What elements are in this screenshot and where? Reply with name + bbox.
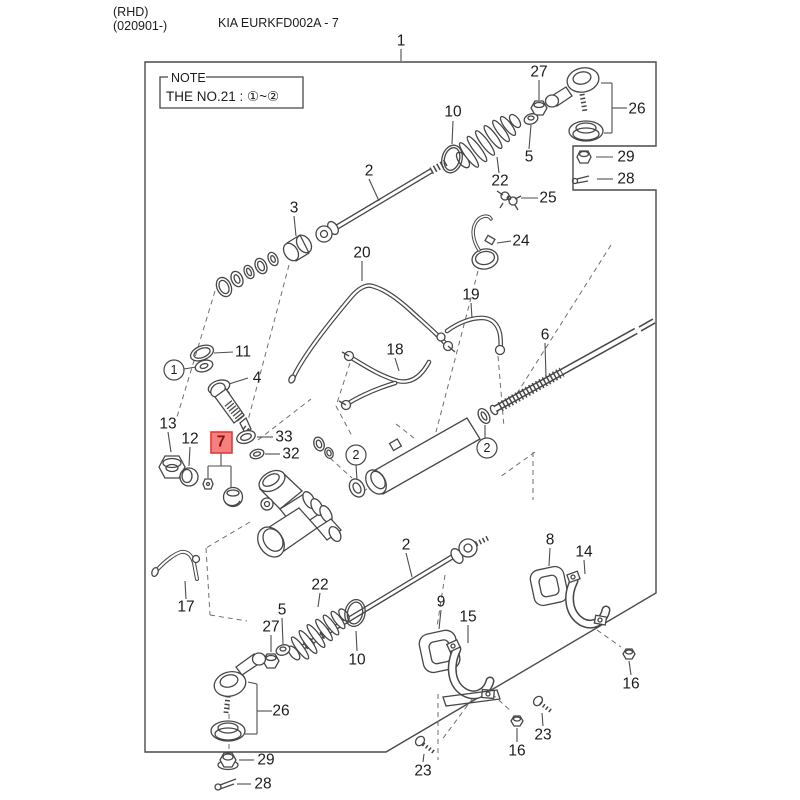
callout-22[interactable]: 22 — [491, 173, 508, 190]
part-nut-29-bottom — [218, 753, 238, 770]
callout-10[interactable]: 10 — [444, 104, 462, 121]
callout-18[interactable]: 18 — [386, 342, 403, 359]
callout-33[interactable]: 33 — [275, 429, 292, 446]
part-clamp-24 — [470, 216, 499, 271]
callout-23[interactable]: 23 — [414, 763, 431, 780]
callout-6[interactable]: 6 — [541, 327, 550, 344]
callout-29[interactable]: 29 — [617, 149, 634, 166]
callout-1[interactable]: 1 — [397, 33, 406, 50]
callout-20[interactable]: 20 — [353, 245, 371, 262]
part-bolt-23-right — [532, 695, 552, 712]
part-nut-29-top — [577, 151, 591, 163]
part-cotter-pin-28-top — [573, 176, 590, 184]
parts-diagram: (RHD) (020901-) KIA EURKFD002A - 7 NOTE … — [0, 0, 800, 800]
part-support-yoke-7 — [224, 488, 243, 507]
callout-2[interactable]: 2 — [402, 537, 411, 554]
callout-29[interactable]: 29 — [257, 752, 274, 769]
callout-9[interactable]: 9 — [437, 594, 446, 611]
callout-5[interactable]: 5 — [525, 149, 534, 166]
callout-19[interactable]: 19 — [462, 287, 479, 304]
part-nut-16-bottom — [511, 716, 523, 726]
part-clamp-25 — [497, 191, 521, 210]
part-yoke-nut-7 — [203, 479, 213, 489]
part-seal-33 — [235, 428, 257, 445]
parts-catalog-page: (RHD) (020901-) KIA EURKFD002A - 7 NOTE … — [0, 0, 800, 800]
part-pinion-valve-assy — [208, 380, 251, 433]
callout-28[interactable]: 28 — [254, 776, 271, 793]
callout-12[interactable]: 12 — [181, 431, 198, 448]
callout-11[interactable]: 11 — [235, 344, 251, 361]
callout-2[interactable]: 2 — [484, 441, 491, 455]
callout-27[interactable]: 27 — [530, 64, 547, 81]
drive-type-label: (RHD) — [113, 5, 148, 19]
callout-24[interactable]: 24 — [512, 233, 530, 250]
part-bellows-boot-22-top — [454, 113, 523, 170]
callout-16[interactable]: 16 — [508, 743, 525, 760]
callout-10[interactable]: 10 — [348, 652, 366, 669]
part-mount-bracket-14 — [567, 571, 607, 625]
part-tube-seal-2b — [476, 407, 493, 426]
note-box: NOTE THE NO.21 : ①~② — [160, 71, 303, 108]
callout-8[interactable]: 8 — [546, 532, 555, 549]
callout-26[interactable]: 26 — [272, 703, 289, 720]
part-rack-bushing-3 — [280, 232, 314, 263]
callout-28[interactable]: 28 — [617, 171, 634, 188]
part-rack-bar-6 — [489, 321, 654, 416]
callout-23[interactable]: 23 — [534, 727, 551, 744]
callout-32[interactable]: 32 — [282, 446, 299, 463]
part-seal-32 — [249, 448, 265, 460]
part-mount-bushing-8 — [529, 565, 570, 607]
part-cotter-pin-28-bottom — [215, 779, 236, 790]
callout-14[interactable]: 14 — [575, 544, 593, 561]
callout-7[interactable]: 7 — [217, 434, 226, 451]
part-tie-rod-end-outer-top — [546, 65, 604, 141]
part-bolt-23-bottom — [414, 735, 435, 753]
part-washer-5-lower — [275, 643, 292, 657]
part-hose-17 — [151, 552, 200, 579]
callout-15[interactable]: 15 — [459, 609, 476, 626]
callout-13[interactable]: 13 — [159, 416, 176, 433]
callout-27[interactable]: 27 — [262, 619, 279, 636]
callout-17[interactable]: 17 — [177, 599, 194, 616]
model-code-label: (020901-) — [113, 19, 167, 33]
part-bellows-boot-22-lower — [286, 607, 351, 662]
part-mount-bracket-15 — [443, 640, 500, 706]
part-inner-tie-rod-2-top — [316, 162, 447, 242]
callout-3[interactable]: 3 — [290, 200, 299, 217]
part-adjuster-cap-12 — [180, 468, 198, 486]
part-lock-nut-27-top — [531, 101, 547, 115]
callout-4[interactable]: 4 — [253, 370, 262, 387]
callout-26[interactable]: 26 — [628, 101, 645, 118]
part-seal-ring-set — [213, 251, 280, 299]
callout-25[interactable]: 25 — [539, 190, 556, 207]
part-nut-16-right — [623, 649, 635, 659]
callout-2[interactable]: 2 — [353, 448, 360, 462]
callout-22[interactable]: 22 — [311, 577, 328, 594]
part-feed-pipe-18 — [339, 352, 429, 410]
note-legend: NOTE — [171, 71, 206, 85]
note-text: THE NO.21 : ①~② — [166, 89, 279, 104]
callout-2[interactable]: 2 — [365, 163, 374, 180]
callout-5[interactable]: 5 — [278, 602, 287, 619]
page-title: KIA EURKFD002A - 7 — [218, 16, 339, 30]
part-small-seals-housing — [312, 436, 335, 460]
callout-16[interactable]: 16 — [622, 676, 639, 693]
part-gear-housing — [252, 466, 343, 562]
callout-1[interactable]: 1 — [171, 363, 178, 377]
part-rack-tube — [361, 418, 480, 498]
